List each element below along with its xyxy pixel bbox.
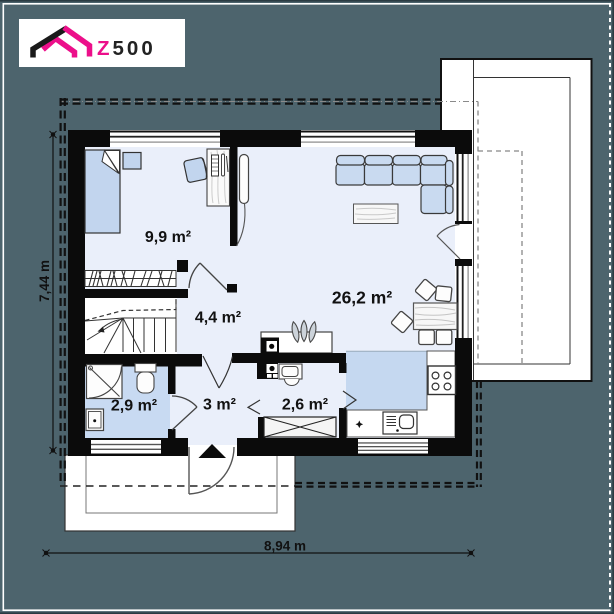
svg-text:2,6 m²: 2,6 m² <box>282 397 328 414</box>
svg-text:Z500: Z500 <box>97 37 156 60</box>
svg-text:2,9 m²: 2,9 m² <box>111 398 157 415</box>
svg-text:3 m²: 3 m² <box>203 397 236 414</box>
svg-text:26,2 m²: 26,2 m² <box>332 288 392 308</box>
svg-text:9,9 m²: 9,9 m² <box>145 229 191 246</box>
svg-text:7,44 m: 7,44 m <box>37 260 52 302</box>
svg-text:4,4 m²: 4,4 m² <box>195 310 241 327</box>
svg-text:8,94 m: 8,94 m <box>264 539 306 554</box>
